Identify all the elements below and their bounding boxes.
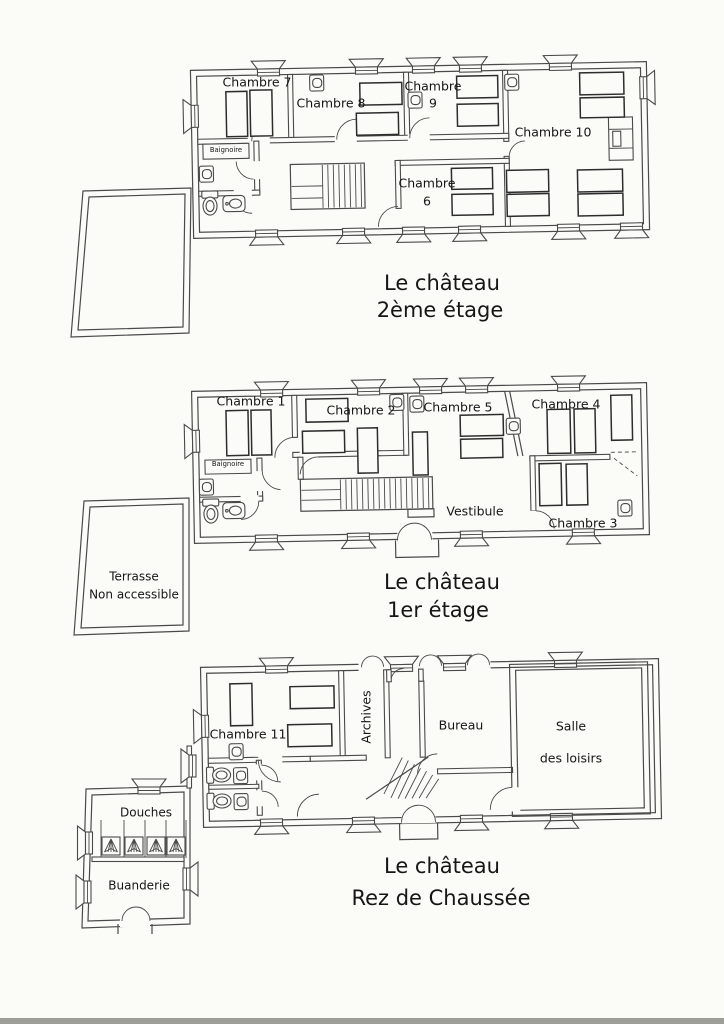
sink-icon bbox=[618, 500, 632, 516]
bed-icon bbox=[506, 170, 548, 193]
bed-icon bbox=[577, 169, 622, 192]
title-line-2: 1er étage bbox=[387, 598, 489, 622]
bed-icon bbox=[356, 112, 398, 135]
room-label-chambre-11: Chambre 11 bbox=[210, 727, 287, 742]
scanned-floor-plan-document: Chambre 7 Chambre 8 Chambre 9 Chambre 10… bbox=[0, 0, 724, 1024]
terrace-outline bbox=[74, 498, 189, 635]
window-icon bbox=[183, 862, 198, 896]
bed-icon bbox=[288, 724, 332, 747]
title-line-1: Le château bbox=[384, 570, 500, 594]
room-label-bureau: Bureau bbox=[439, 718, 484, 733]
bed-icon bbox=[460, 414, 503, 436]
main-door bbox=[399, 805, 438, 840]
staircase bbox=[365, 757, 439, 799]
ground-floor-room-labels: Chambre 11 Archives Bureau Salle des loi… bbox=[108, 690, 602, 892]
bed-icon bbox=[461, 438, 503, 458]
title-line-1: Le château bbox=[384, 854, 500, 878]
bidet-icon bbox=[223, 195, 245, 211]
terrace-label-line-1: Terrasse bbox=[108, 570, 159, 584]
bed-icon bbox=[290, 686, 334, 709]
room-label-baignoire: Baignoire bbox=[210, 146, 242, 154]
title-line-2: 2ème étage bbox=[377, 298, 504, 322]
room-label-vestibule: Vestibule bbox=[446, 504, 503, 519]
room-label-chambre-10: Chambre 10 bbox=[515, 125, 592, 140]
second-floor-plan: Chambre 7 Chambre 8 Chambre 9 Chambre 10… bbox=[71, 53, 658, 337]
sink-icon bbox=[199, 166, 213, 182]
first-floor-title: Le château 1er étage bbox=[384, 570, 500, 622]
first-floor-plan: Chambre 1 Chambre 2 Chambre 5 Chambre 4 … bbox=[74, 375, 650, 635]
room-label-chambre-9-word: Chambre bbox=[405, 79, 462, 94]
bidet-icon bbox=[223, 502, 245, 518]
toilet-icon bbox=[206, 767, 230, 783]
bed-icon bbox=[452, 194, 493, 216]
sink-icon bbox=[505, 74, 519, 90]
bed-icon bbox=[226, 410, 249, 455]
room-label-salle-line-1: Salle bbox=[556, 719, 587, 734]
staircase bbox=[290, 163, 365, 209]
room-label-baignoire: Baignoire bbox=[212, 460, 244, 468]
bed-icon bbox=[457, 75, 498, 98]
bed-icon bbox=[547, 409, 571, 453]
terrace-label-line-2: Non accessible bbox=[89, 588, 179, 602]
entrance-portico bbox=[358, 654, 490, 683]
toilet-icon bbox=[203, 499, 219, 523]
bed-icon bbox=[302, 430, 344, 453]
toilet-icon bbox=[207, 793, 231, 809]
bed-icon bbox=[457, 103, 498, 126]
sink-icon bbox=[233, 768, 247, 784]
staircase bbox=[300, 477, 434, 520]
divider-wall bbox=[92, 857, 184, 862]
room-label-salle-line-2: des loisirs bbox=[540, 751, 602, 766]
room-label-buanderie: Buanderie bbox=[108, 879, 169, 893]
room-label-chambre-7: Chambre 7 bbox=[223, 75, 292, 90]
terrace-outline bbox=[71, 188, 191, 337]
shower-icon bbox=[167, 837, 185, 855]
window-icon bbox=[132, 779, 166, 794]
title-line-2: Rez de Chaussée bbox=[351, 886, 530, 910]
bed-icon bbox=[580, 72, 624, 95]
sink-icon bbox=[410, 396, 424, 412]
room-label-chambre-9-num: 9 bbox=[429, 96, 437, 111]
room-label-chambre-8: Chambre 8 bbox=[297, 96, 366, 111]
room-label-chambre-4: Chambre 4 bbox=[532, 397, 601, 412]
toilet-icon bbox=[202, 191, 218, 215]
shower-icon bbox=[147, 837, 165, 855]
main-door bbox=[395, 523, 439, 558]
shower-icon bbox=[102, 837, 120, 855]
sink-icon bbox=[506, 418, 520, 434]
bed-icon bbox=[360, 82, 402, 105]
bed-icon bbox=[578, 193, 623, 216]
second-floor-title: Le château 2ème étage bbox=[377, 271, 504, 322]
room-label-chambre-2: Chambre 2 bbox=[327, 403, 396, 418]
shower-icon bbox=[125, 837, 143, 855]
bed-icon bbox=[574, 409, 596, 453]
ground-floor-title: Le château Rez de Chaussée bbox=[351, 854, 530, 910]
room-label-chambre-1: Chambre 1 bbox=[217, 394, 286, 409]
bed-icon bbox=[507, 194, 549, 217]
room-label-archives: Archives bbox=[359, 690, 374, 743]
bed-icon bbox=[230, 683, 253, 725]
sink-icon bbox=[199, 479, 213, 495]
bed-icon bbox=[250, 90, 273, 136]
bed-icon bbox=[566, 464, 588, 505]
bed-icon bbox=[539, 463, 562, 505]
sink-icon bbox=[408, 92, 422, 108]
sink-icon bbox=[234, 794, 248, 810]
title-line-1: Le château bbox=[384, 271, 500, 295]
window-icon bbox=[181, 749, 196, 783]
bed-icon bbox=[226, 91, 248, 136]
bed-icon bbox=[251, 410, 272, 455]
ground-floor-plan: Chambre 11 Archives Bureau Salle des loi… bbox=[76, 651, 662, 934]
bed-icon bbox=[412, 432, 428, 475]
door-arcs bbox=[239, 432, 554, 534]
fireplace-icon bbox=[608, 117, 633, 160]
salle-des-loisirs-walls bbox=[488, 662, 651, 817]
room-label-chambre-3: Chambre 3 bbox=[549, 516, 618, 531]
room-label-douches: Douches bbox=[120, 806, 172, 820]
room-label-chambre-5: Chambre 5 bbox=[424, 400, 493, 415]
annex-door bbox=[118, 907, 152, 934]
room-label-chambre-6-word: Chambre bbox=[399, 176, 456, 191]
room-label-chambre-6-num: 6 bbox=[423, 194, 431, 209]
sink-icon bbox=[310, 75, 324, 91]
bed-icon bbox=[611, 395, 633, 440]
bed-icon bbox=[451, 168, 492, 190]
scanner-edge-shadow bbox=[0, 1018, 724, 1024]
annex-douches-buanderie bbox=[76, 746, 198, 934]
first-floor-room-labels: Chambre 1 Chambre 2 Chambre 5 Chambre 4 … bbox=[89, 394, 617, 602]
bed-icon bbox=[580, 97, 624, 118]
sink-icon bbox=[229, 744, 243, 760]
bed-icon bbox=[357, 428, 378, 473]
